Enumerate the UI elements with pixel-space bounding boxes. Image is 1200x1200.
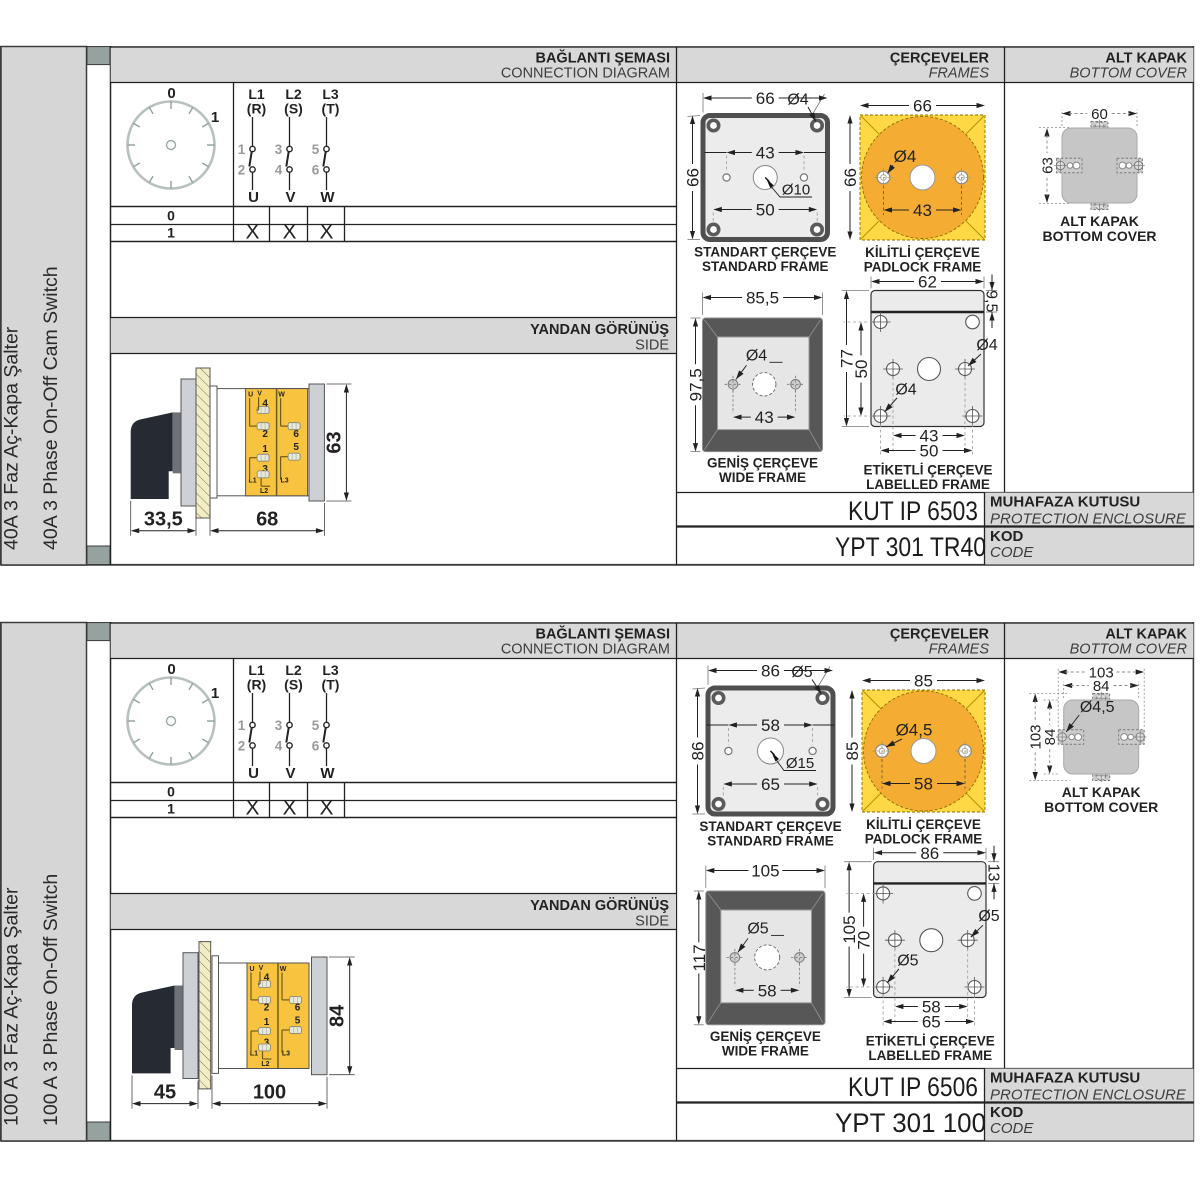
svg-text:PROTECTION ENCLOSURE: PROTECTION ENCLOSURE [990, 1087, 1187, 1104]
svg-text:1: 1 [264, 1017, 270, 1028]
svg-text:85,5: 85,5 [746, 289, 779, 308]
svg-text:X: X [319, 797, 333, 820]
svg-text:84: 84 [1042, 729, 1059, 746]
svg-text:84: 84 [1093, 678, 1110, 695]
svg-text:33,5: 33,5 [144, 509, 183, 531]
svg-text:GENİŞ ÇERÇEVE: GENİŞ ÇERÇEVE [710, 1029, 821, 1044]
svg-text:65: 65 [922, 1013, 941, 1032]
svg-text:BOTTOM COVER: BOTTOM COVER [1042, 228, 1156, 244]
svg-text:97,5: 97,5 [687, 368, 706, 401]
svg-text:43: 43 [913, 201, 932, 220]
svg-text:ÇERÇEVELER: ÇERÇEVELER [890, 51, 990, 67]
svg-text:GENİŞ ÇERÇEVE: GENİŞ ÇERÇEVE [707, 456, 818, 471]
svg-text:X: X [245, 221, 259, 244]
svg-text:L2: L2 [260, 488, 268, 495]
svg-text:5: 5 [295, 1016, 301, 1027]
svg-text:40A 3 Faz Aç-Kapa Şalter: 40A 3 Faz Aç-Kapa Şalter [1, 326, 23, 550]
svg-text:60: 60 [1091, 106, 1108, 123]
svg-text:ALT KAPAK: ALT KAPAK [1105, 627, 1187, 643]
svg-text:86: 86 [689, 742, 708, 761]
svg-text:66: 66 [913, 97, 932, 116]
svg-text:V: V [285, 765, 295, 782]
svg-text:LABELLED FRAME: LABELLED FRAME [866, 477, 990, 492]
svg-text:SIDE: SIDE [635, 914, 669, 930]
svg-text:58: 58 [761, 716, 780, 735]
svg-text:X: X [282, 797, 296, 820]
svg-text:PROTECTION ENCLOSURE: PROTECTION ENCLOSURE [990, 511, 1187, 528]
svg-text:V: V [257, 391, 262, 398]
svg-text:Ø4: Ø4 [976, 337, 997, 354]
svg-text:BOTTOM COVER: BOTTOM COVER [1070, 642, 1188, 658]
svg-text:2: 2 [262, 429, 268, 440]
svg-text:86: 86 [920, 844, 939, 863]
svg-text:X: X [282, 221, 296, 244]
svg-text:KUT IP 6503: KUT IP 6503 [848, 496, 978, 526]
svg-text:CODE: CODE [990, 1120, 1034, 1137]
svg-text:U: U [249, 966, 254, 973]
svg-text:0: 0 [167, 661, 175, 678]
svg-text:58: 58 [914, 775, 933, 794]
svg-text:ETİKETLİ ÇERÇEVE: ETİKETLİ ÇERÇEVE [866, 1034, 995, 1049]
svg-text:50: 50 [920, 442, 939, 461]
svg-text:ALT KAPAK: ALT KAPAK [1060, 213, 1139, 229]
svg-text:86: 86 [761, 662, 780, 681]
svg-text:(R): (R) [247, 677, 266, 693]
svg-text:85: 85 [843, 742, 862, 761]
svg-text:13: 13 [985, 864, 1002, 882]
svg-text:CONNECTION DIAGRAM: CONNECTION DIAGRAM [501, 642, 670, 658]
svg-text:(S): (S) [284, 677, 303, 693]
svg-text:Ø5: Ø5 [897, 953, 918, 970]
svg-text:9,5: 9,5 [983, 290, 1000, 312]
svg-text:66: 66 [756, 89, 775, 108]
svg-text:3: 3 [275, 718, 283, 733]
svg-text:1: 1 [238, 718, 246, 733]
svg-text:W: W [280, 966, 287, 973]
svg-text:70: 70 [855, 931, 874, 950]
svg-text:BAĞLANTI ŞEMASI: BAĞLANTI ŞEMASI [535, 49, 670, 67]
svg-text:2: 2 [264, 1002, 270, 1013]
svg-text:WIDE FRAME: WIDE FRAME [722, 1043, 809, 1058]
svg-text:Ø4: Ø4 [746, 347, 767, 364]
svg-text:ALT KAPAK: ALT KAPAK [1105, 51, 1187, 67]
svg-text:(T): (T) [322, 677, 340, 693]
svg-text:Ø4: Ø4 [895, 382, 916, 399]
svg-text:4: 4 [275, 163, 283, 178]
svg-text:BAĞLANTI ŞEMASI: BAĞLANTI ŞEMASI [535, 625, 670, 643]
svg-text:KOD: KOD [990, 1104, 1024, 1121]
svg-text:(T): (T) [322, 101, 340, 117]
svg-text:0: 0 [167, 784, 175, 800]
svg-text:L2: L2 [261, 1061, 269, 1068]
svg-text:1: 1 [167, 801, 175, 817]
svg-text:W: W [320, 765, 335, 782]
svg-text:100: 100 [253, 1082, 286, 1104]
svg-text:50: 50 [852, 360, 871, 379]
svg-text:U: U [248, 392, 253, 399]
svg-text:CODE: CODE [990, 544, 1034, 561]
svg-text:W: W [320, 189, 335, 206]
svg-text:6: 6 [312, 163, 320, 178]
svg-text:STANDARD FRAME: STANDARD FRAME [702, 259, 829, 274]
svg-text:BOTTOM COVER: BOTTOM COVER [1044, 799, 1158, 815]
svg-text:(S): (S) [284, 101, 303, 117]
svg-text:STANDARD FRAME: STANDARD FRAME [707, 834, 834, 849]
svg-text:STANDART ÇERÇEVE: STANDART ÇERÇEVE [694, 245, 836, 260]
svg-text:5: 5 [312, 142, 320, 157]
svg-text:YPT 301 100: YPT 301 100 [835, 1108, 986, 1138]
svg-text:FRAMES: FRAMES [929, 642, 990, 658]
svg-text:(R): (R) [247, 101, 266, 117]
svg-text:63: 63 [323, 431, 345, 453]
svg-text:SIDE: SIDE [635, 338, 669, 354]
svg-text:BOTTOM COVER: BOTTOM COVER [1070, 66, 1188, 82]
svg-text:66: 66 [841, 168, 860, 187]
svg-text:ÇERÇEVELER: ÇERÇEVELER [890, 627, 990, 643]
svg-text:6: 6 [293, 429, 299, 440]
svg-text:4: 4 [275, 739, 283, 754]
svg-text:U: U [248, 189, 259, 206]
svg-text:WIDE FRAME: WIDE FRAME [719, 470, 806, 485]
svg-text:V: V [259, 965, 264, 972]
svg-text:KUT IP 6506: KUT IP 6506 [848, 1072, 978, 1102]
svg-text:X: X [245, 797, 259, 820]
svg-text:1: 1 [211, 685, 219, 702]
svg-text:2: 2 [238, 739, 246, 754]
svg-text:6: 6 [312, 739, 320, 754]
svg-text:2: 2 [238, 163, 246, 178]
svg-text:62: 62 [918, 273, 937, 292]
svg-text:65: 65 [761, 775, 780, 794]
svg-text:Ø4: Ø4 [894, 147, 917, 166]
svg-text:ALT KAPAK: ALT KAPAK [1062, 784, 1141, 800]
svg-text:0: 0 [167, 208, 175, 224]
svg-text:100 A 3 Faz Aç-Kapa Şalter: 100 A 3 Faz Aç-Kapa Şalter [1, 887, 23, 1126]
svg-text:1: 1 [211, 109, 219, 126]
svg-text:L3: L3 [282, 1050, 290, 1057]
svg-text:CONNECTION DIAGRAM: CONNECTION DIAGRAM [501, 66, 670, 82]
svg-text:KİLİTLİ ÇERÇEVE: KİLİTLİ ÇERÇEVE [865, 245, 980, 260]
svg-text:STANDART ÇERÇEVE: STANDART ÇERÇEVE [699, 819, 841, 834]
svg-text:100 A 3 Phase On-Off Switch: 100 A 3 Phase On-Off Switch [40, 874, 62, 1126]
svg-text:ETİKETLİ ÇERÇEVE: ETİKETLİ ÇERÇEVE [863, 463, 992, 478]
svg-text:43: 43 [755, 408, 774, 427]
svg-text:W: W [278, 392, 285, 399]
svg-text:5: 5 [312, 718, 320, 733]
svg-text:MUHAFAZA KUTUSU: MUHAFAZA KUTUSU [990, 494, 1140, 511]
svg-text:45: 45 [154, 1082, 176, 1104]
svg-text:40A 3 Phase On-Off Cam Switch: 40A 3 Phase On-Off Cam Switch [40, 266, 62, 550]
svg-text:KOD: KOD [990, 528, 1024, 545]
svg-text:YPT 301 TR40: YPT 301 TR40 [835, 532, 986, 562]
svg-text:Ø4: Ø4 [787, 92, 808, 109]
svg-text:U: U [248, 765, 259, 782]
svg-text:117: 117 [690, 944, 709, 971]
svg-text:66: 66 [684, 168, 703, 187]
svg-text:0: 0 [167, 85, 175, 102]
svg-text:Ø10: Ø10 [782, 182, 810, 199]
svg-text:50: 50 [756, 201, 775, 220]
svg-text:6: 6 [295, 1002, 301, 1013]
svg-text:KİLİTLİ ÇERÇEVE: KİLİTLİ ÇERÇEVE [866, 817, 981, 832]
svg-text:X: X [319, 221, 333, 244]
svg-text:Ø15: Ø15 [786, 755, 814, 772]
svg-text:MUHAFAZA KUTUSU: MUHAFAZA KUTUSU [990, 1070, 1140, 1087]
svg-text:V: V [285, 189, 295, 206]
svg-text:58: 58 [758, 981, 777, 1000]
svg-text:L3: L3 [281, 477, 289, 484]
svg-text:1: 1 [238, 142, 246, 157]
svg-text:84: 84 [327, 1004, 349, 1027]
svg-text:85: 85 [914, 672, 933, 691]
svg-text:LABELLED FRAME: LABELLED FRAME [868, 1048, 992, 1063]
svg-text:68: 68 [256, 509, 278, 531]
svg-text:Ø4,5: Ø4,5 [1080, 699, 1115, 716]
svg-text:Ø4,5: Ø4,5 [896, 721, 933, 740]
svg-text:Ø5: Ø5 [747, 920, 768, 937]
svg-text:FRAMES: FRAMES [929, 66, 990, 82]
svg-text:105: 105 [751, 862, 779, 881]
svg-text:Ø5: Ø5 [978, 908, 999, 925]
svg-text:Ø5: Ø5 [791, 664, 812, 681]
svg-text:YANDAN GÖRÜNÜŞ: YANDAN GÖRÜNÜŞ [530, 897, 669, 914]
svg-text:1: 1 [262, 444, 268, 455]
svg-text:43: 43 [756, 144, 775, 163]
svg-text:3: 3 [275, 142, 283, 157]
svg-text:1: 1 [167, 225, 175, 241]
svg-text:63: 63 [1039, 157, 1056, 174]
svg-text:5: 5 [293, 442, 299, 453]
svg-text:YANDAN GÖRÜNÜŞ: YANDAN GÖRÜNÜŞ [530, 321, 669, 338]
